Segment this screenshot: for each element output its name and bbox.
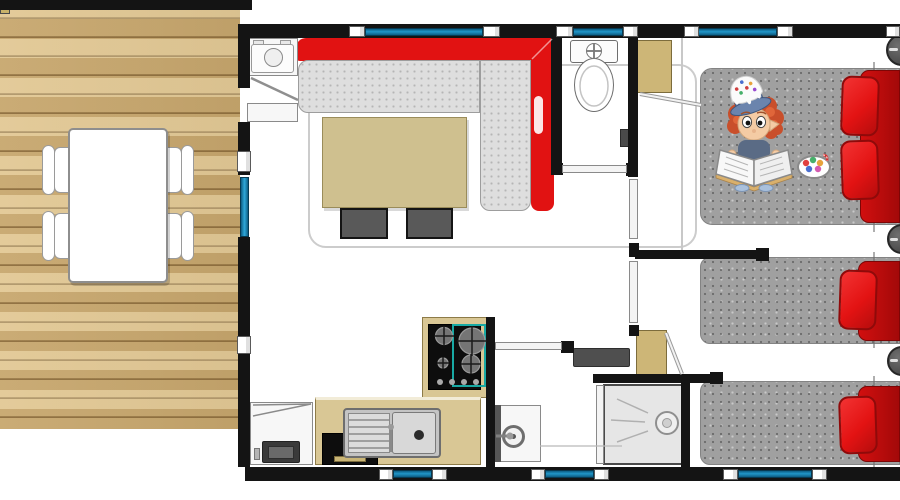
sofa-back-top — [296, 38, 554, 61]
bedside-table-highlight — [890, 359, 898, 362]
shower-window — [545, 470, 594, 478]
coffee-table — [322, 117, 467, 208]
bathroom-wardrobe — [636, 330, 667, 377]
toilet-bowl — [574, 58, 614, 112]
window-latch — [349, 26, 365, 37]
window-latch — [812, 469, 827, 480]
window-latch — [623, 26, 638, 37]
sofa-armrest-slot — [534, 96, 543, 134]
sofa-seat-right — [480, 60, 531, 211]
washer-control — [253, 40, 264, 45]
window-latch — [886, 26, 900, 37]
entrance-cabinet — [247, 103, 298, 122]
wc-hall-wall — [628, 38, 638, 177]
living-wc-wall — [551, 38, 562, 175]
bathroom-shelf — [573, 348, 630, 367]
washbasin-drain — [511, 434, 516, 439]
sofa-seat-top — [298, 60, 480, 113]
toilet-flush-button — [586, 43, 602, 59]
fridge-compartment-inner — [268, 446, 294, 459]
deck-bottom-rail — [0, 0, 252, 10]
sink-drainer — [348, 413, 390, 453]
bedside-table-highlight — [890, 238, 898, 241]
washing-machine-drum — [264, 48, 283, 67]
sink-drain — [414, 430, 424, 440]
washer-control — [280, 40, 291, 45]
wc-door — [562, 165, 627, 173]
bathroom-door — [495, 342, 562, 350]
hall-wardrobe — [637, 40, 672, 93]
window-latch — [483, 26, 500, 37]
wardrobe-open-door — [666, 333, 682, 374]
bedside-table-highlight — [889, 48, 898, 51]
shower-tray — [603, 384, 684, 465]
window-latch — [432, 469, 447, 480]
patio-door-latch — [237, 151, 251, 172]
entrance-door-swing — [251, 78, 298, 100]
dining-table — [68, 128, 168, 283]
terrace-sliding-door — [240, 177, 249, 237]
gas-hob — [428, 324, 481, 390]
fridge-handle — [254, 448, 260, 460]
double-bed-pillow — [840, 139, 880, 200]
window-latch — [531, 469, 545, 480]
kitchen-window — [393, 470, 432, 478]
window-latch — [777, 26, 793, 37]
window-latch — [684, 26, 699, 37]
shower-door — [596, 385, 604, 464]
double-bed-pillow — [840, 75, 880, 136]
dining-chair-back — [42, 145, 55, 195]
kitchen-bath-wall — [486, 317, 495, 467]
hall-wall-node — [629, 325, 639, 336]
patio-door-latch — [237, 336, 251, 354]
dining-chair-back — [181, 145, 194, 195]
dining-chair-back — [42, 211, 55, 261]
bath-door-node — [561, 341, 574, 353]
shower-bedroom-node — [710, 372, 723, 384]
shower-bedroom-wall — [593, 374, 721, 383]
bedroom-door-1 — [629, 179, 638, 239]
stool — [406, 208, 453, 239]
wc-door-node — [626, 163, 638, 176]
floor-plan — [0, 0, 900, 500]
bedroom-divider-node — [756, 248, 769, 261]
single-bed-b-pillow — [838, 395, 878, 454]
single-bed-a-pillow — [838, 269, 878, 330]
bedroom-door-2 — [629, 261, 638, 323]
single-bedroom-window — [738, 470, 812, 478]
living-room-window — [365, 28, 483, 36]
bedroom-divider-wall — [635, 250, 765, 259]
bedroom-floor-edge — [681, 38, 683, 250]
double-bedroom-window — [698, 28, 777, 36]
window-latch — [723, 469, 738, 480]
shower-right-wall — [681, 383, 690, 467]
wc-window — [573, 28, 623, 36]
left-exterior-wall-segment — [238, 24, 250, 88]
window-latch — [556, 26, 573, 37]
stool — [340, 208, 388, 239]
dining-chair-back — [181, 211, 194, 261]
window-latch — [594, 469, 609, 480]
window-latch — [379, 469, 393, 480]
